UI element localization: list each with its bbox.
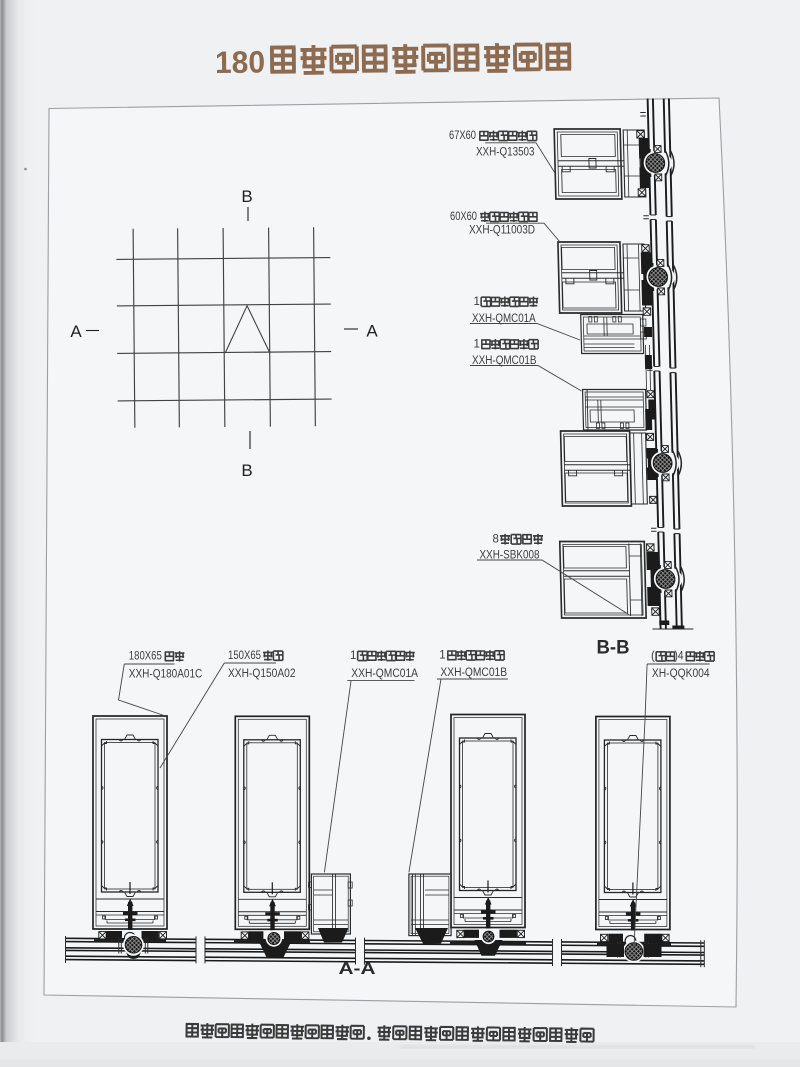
svg-text:XXH-QMC01B: XXH-QMC01B (472, 353, 537, 367)
svg-text:1: 1 (439, 650, 445, 662)
svg-text:)4: )4 (675, 651, 685, 663)
svg-text:180X65: 180X65 (129, 651, 162, 663)
svg-text:67X60: 67X60 (449, 130, 476, 142)
svg-text:60X60: 60X60 (450, 211, 477, 223)
svg-text:A-A: A-A (339, 959, 376, 978)
svg-text:1: 1 (474, 296, 480, 308)
svg-text:A: A (366, 322, 378, 341)
svg-text:XXH-SBK008: XXH-SBK008 (480, 547, 540, 561)
svg-text:180: 180 (215, 44, 265, 80)
svg-text:XXH-QMC01A: XXH-QMC01A (351, 666, 418, 680)
svg-text:1: 1 (350, 650, 356, 662)
svg-text:XXH-Q13503: XXH-Q13503 (476, 144, 535, 158)
svg-text:1: 1 (474, 339, 480, 351)
svg-text:XXH-Q180A01C: XXH-Q180A01C (129, 667, 203, 681)
svg-text:8: 8 (493, 534, 499, 546)
svg-text:XXH-QMC01A: XXH-QMC01A (472, 311, 536, 325)
svg-text:(: ( (651, 651, 655, 663)
svg-text:XXH-QMC01B: XXH-QMC01B (440, 665, 507, 679)
svg-text:150X65: 150X65 (228, 650, 261, 662)
svg-text:A: A (70, 322, 82, 341)
svg-text:XXH-Q150A02: XXH-Q150A02 (228, 666, 296, 680)
svg-text:XXH-Q11003D: XXH-Q11003D (469, 223, 535, 237)
svg-text:XH-QQK004: XH-QQK004 (652, 666, 710, 680)
svg-text:B: B (241, 461, 252, 480)
svg-text:B: B (241, 187, 252, 206)
svg-text:B-B: B-B (597, 637, 630, 659)
